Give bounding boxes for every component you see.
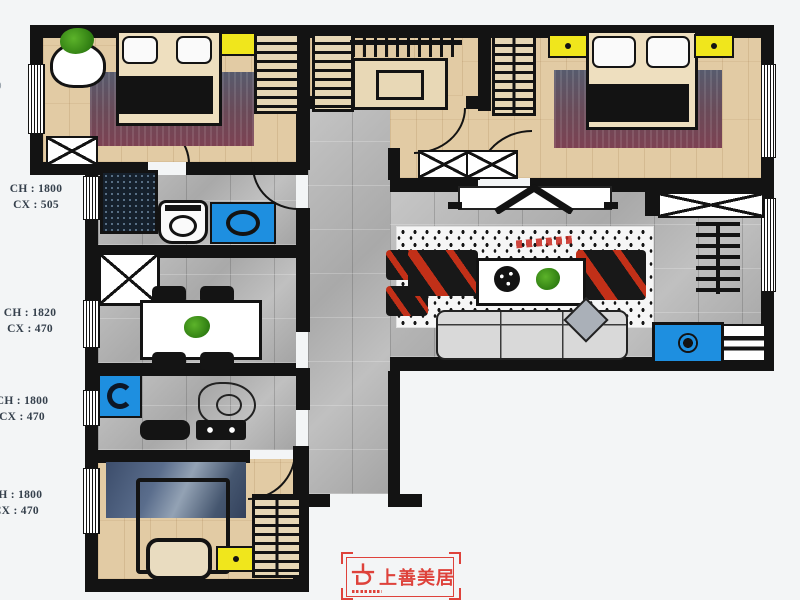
brand-logo-icon bbox=[350, 563, 376, 591]
bedroomTL-blanket bbox=[119, 76, 213, 114]
closet-island-tray bbox=[376, 70, 424, 100]
bedroomTR-nightstand-1 bbox=[548, 34, 588, 58]
bathroom-sink bbox=[210, 202, 276, 244]
wall-corridor-right-lower bbox=[388, 371, 400, 496]
window-bedroomBB-left bbox=[83, 468, 100, 534]
bedroomTL-window-bench bbox=[46, 136, 98, 166]
living-tv-icon bbox=[492, 184, 576, 214]
bedroomTR-pillow-2 bbox=[646, 36, 690, 68]
living-sofa-right bbox=[576, 250, 646, 300]
dimension-label-2: CH : 1820 CX : 470 bbox=[0, 306, 60, 337]
kitchen-sink-unit bbox=[98, 374, 142, 418]
living-tv-leg-right bbox=[604, 202, 618, 209]
wall-entry-stub-right bbox=[388, 494, 422, 507]
dimension-label-4: CH : 1800 CX : 470 bbox=[0, 488, 46, 519]
wall-balcony-stub bbox=[645, 178, 659, 216]
closet-wardrobe-left bbox=[312, 30, 354, 112]
balcony-washing-machine bbox=[652, 322, 724, 364]
bedroomTR-wardrobe bbox=[492, 32, 536, 116]
window-bedroomTL-left bbox=[28, 64, 45, 134]
hall-shoe-bench-2 bbox=[466, 150, 518, 179]
dimension-label-3-line1: CH : 1800 bbox=[0, 394, 52, 410]
bedroomBB-wardrobe bbox=[252, 494, 302, 578]
wall-vestibule-stub bbox=[388, 148, 400, 180]
window-dining-left bbox=[83, 300, 100, 348]
hall-shoe-bench-1 bbox=[418, 150, 470, 179]
living-tv-leg-left bbox=[448, 202, 462, 209]
closet-hangers-bottom bbox=[352, 45, 458, 57]
dimension-label-4-line2: CX : 470 bbox=[0, 504, 46, 520]
living-coffee-tray bbox=[494, 266, 520, 292]
closet-hangers-top bbox=[352, 28, 458, 40]
balcony-sliding-window bbox=[658, 192, 764, 218]
wall-entry-stub-left bbox=[304, 494, 330, 507]
wall-closet-bedroomTR-divider bbox=[478, 25, 491, 111]
floor-plan-canvas: CH : 1800 CX : 505 CH : 1820 CX : 470 CH… bbox=[0, 0, 800, 600]
dimension-label-3: CH : 1800 CX : 470 bbox=[0, 394, 52, 425]
bedroomTL-wardrobe bbox=[254, 30, 300, 114]
edge-mark: 0 bbox=[0, 80, 2, 92]
balcony-shelf bbox=[722, 324, 766, 362]
window-bathroom-left bbox=[83, 176, 100, 220]
dimension-label-2-line1: CH : 1820 bbox=[0, 306, 60, 322]
bathroom-shower bbox=[100, 170, 158, 234]
dimension-label-1-line2: CX : 505 bbox=[6, 198, 66, 214]
brand-logo-subtext-marks bbox=[352, 590, 382, 593]
balcony-plant-rack bbox=[696, 222, 740, 294]
dining-flue-shaft bbox=[98, 252, 160, 306]
wall-corridor-left-2 bbox=[296, 368, 310, 410]
bathroom-toilet bbox=[158, 200, 208, 244]
wall-corridor-left-1 bbox=[296, 208, 310, 332]
living-coffee-table bbox=[476, 258, 586, 306]
dimension-label-3-line2: CX : 470 bbox=[0, 410, 52, 426]
dining-chair-4 bbox=[200, 352, 234, 370]
kitchen-counter-basin bbox=[140, 420, 190, 440]
bedroomBB-chair bbox=[146, 538, 212, 580]
dining-chair-3 bbox=[152, 352, 186, 370]
window-bedroomTR-right bbox=[761, 64, 776, 158]
bedroomTR-nightstand-2 bbox=[694, 34, 734, 58]
bedroomTL-cushion bbox=[220, 32, 258, 56]
brand-logo-text: 上善美居 bbox=[379, 564, 455, 590]
bedroomTL-pillow-1 bbox=[122, 36, 158, 64]
hallway-floor bbox=[308, 96, 390, 494]
dimension-label-1: CH : 1800 CX : 505 bbox=[6, 182, 66, 213]
bedroomTL-pillow-2 bbox=[176, 36, 212, 64]
living-sofa-left bbox=[408, 250, 478, 296]
dimension-label-2-line2: CX : 470 bbox=[0, 322, 60, 338]
bedroomTR-pillow-1 bbox=[592, 36, 636, 68]
bedroomTR-blanket bbox=[589, 84, 689, 122]
dimension-label-4-line1: CH : 1800 bbox=[0, 488, 46, 504]
wall-bottom bbox=[85, 579, 307, 592]
dimension-label-1-line1: CH : 1800 bbox=[6, 182, 66, 198]
kitchen-stove bbox=[196, 420, 246, 440]
bedroomBB-nightstand bbox=[216, 546, 256, 572]
